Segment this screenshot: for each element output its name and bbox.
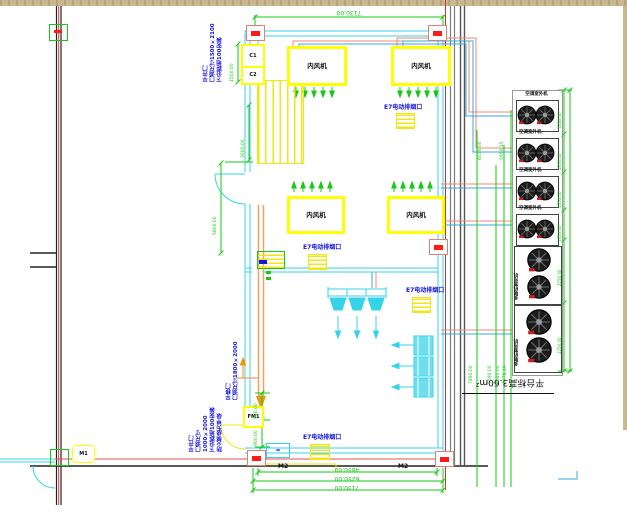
dim-left-lower: 5800.00: [214, 185, 219, 235]
note-line: 平移门: [226, 336, 233, 400]
note-line: 下沿距地100安装: [210, 400, 217, 452]
exhaust-grille: [308, 254, 327, 270]
dim-mark: [266, 277, 271, 280]
valve-mark: [259, 260, 267, 264]
column-marker: [246, 25, 265, 41]
indoor-unit-label: 内风机: [411, 63, 431, 70]
grille-label: E7电动排烟口: [303, 435, 341, 441]
dim-riser-upper-1: 6030.00: [479, 108, 484, 160]
door-swing-upper: [215, 174, 245, 204]
equipment-box: ≈: [266, 443, 290, 458]
indoor-unit-label: 内风机: [307, 63, 327, 70]
note-line: 门洞尺寸1000×2000: [196, 400, 210, 452]
door-spec-note-mid: 平移门 门洞尺寸1800×2000: [226, 336, 240, 400]
indoor-unit-3: 内风机: [287, 196, 345, 234]
dim-bottom-3: 7130.00: [303, 484, 391, 490]
diffuser-cluster-vertical: [392, 336, 433, 397]
note-line: 门洞尺寸1800×2000: [233, 336, 240, 400]
door-tag-left: M1: [72, 445, 95, 463]
exhaust-grille: [396, 113, 415, 129]
red-mark-icon: [434, 245, 443, 250]
note-line: 防火等级为甲级: [217, 400, 224, 452]
door-swing-lower: [221, 425, 245, 449]
wall-junction-box: [49, 24, 68, 41]
equipment-mark: ≈: [275, 448, 280, 454]
outdoor-unit-small-label: 空调室外机: [519, 131, 542, 136]
exhaust-grille: [412, 297, 431, 313]
door-tag-label: M1: [79, 452, 87, 457]
outdoor-unit-small-label: 空调室外机: [519, 207, 542, 212]
indoor-unit-label: 内风机: [306, 212, 326, 219]
dim-unit-4: 1350.00: [558, 208, 562, 242]
outdoor-unit-small-label: 空调室外机: [516, 93, 557, 98]
note-line: 门洞尺寸1500×2100: [210, 22, 217, 82]
window-tag-label: C1: [249, 54, 256, 59]
dim-unit-3: 1350.00: [558, 174, 562, 208]
indoor-unit-1: 内风机: [287, 46, 347, 86]
window-tag-label: C2: [249, 73, 256, 78]
red-mark-icon: [251, 31, 260, 36]
window-tag-1: C1: [241, 44, 265, 68]
red-mark-icon: [54, 30, 62, 33]
dim-unit-5: 2250.00: [558, 252, 562, 286]
grille-label: E7电动排烟口: [303, 245, 341, 251]
dim-mark: [266, 271, 271, 274]
red-mark-icon: [252, 456, 261, 461]
dim-riser-lower-1: 7890.00: [470, 332, 475, 384]
outdoor-unit-small: [516, 100, 559, 132]
red-mark-icon: [433, 31, 442, 36]
outdoor-unit-small: [516, 176, 559, 208]
outdoor-unit-large-label: 多联机室外机: [515, 312, 520, 366]
door-spec-note-top: 平开门 门洞尺寸1500×2100 下沿距地100安装: [203, 22, 224, 82]
outdoor-unit-large-2: [514, 305, 562, 373]
site-wall-left: [30, 6, 61, 505]
grille-label: E7电动排烟口: [384, 105, 422, 111]
outdoor-unit-small: [516, 214, 559, 246]
indoor-unit-4: 内风机: [387, 196, 445, 234]
dim-left-upper: 1500.00: [231, 46, 236, 82]
note-line: 下沿距地100安装: [217, 22, 224, 82]
indoor-unit-label: 内风机: [406, 212, 426, 219]
column-marker: [247, 450, 266, 466]
outdoor-unit-small: [516, 138, 559, 170]
dim-unit-1: 1350.00: [558, 95, 562, 129]
indoor-unit-2: 内风机: [391, 46, 451, 86]
dim-riser-lower-2: 7590.00: [489, 332, 494, 384]
dim-unit-6: 2250.00: [558, 320, 562, 354]
column-marker: [428, 25, 447, 41]
door-swing-site: [33, 466, 55, 488]
dim-bottom-2: 6250.00: [303, 475, 391, 481]
fcu-airflow-arrows: [292, 87, 438, 192]
site-lines-bottom: [0, 459, 488, 488]
wall-junction-box: [50, 449, 69, 466]
dim-door-1: 900.00: [255, 395, 260, 419]
outdoor-unit-large-1: [514, 246, 562, 305]
diffuser-cluster-horizontal: [328, 287, 386, 338]
cad-drawing-canvas: 内风机 内风机 内风机 内风机 C1 C2 FM1 M1 E7电动排烟口 E7电…: [0, 0, 627, 519]
door-spec-note-bottom: 平开门 门洞尺寸1000×2000 下沿距地100安装 防火等级为甲级: [189, 400, 224, 452]
note-line: 平开门: [203, 22, 210, 82]
dim-top: 7130.00: [305, 9, 393, 15]
dim-tag: M2: [278, 464, 288, 470]
outdoor-unit-large-label: 多联机室外机: [515, 250, 520, 300]
louver-block: [257, 80, 304, 164]
dim-tag: M2: [398, 464, 408, 470]
dim-riser-upper-2: 5950.15: [501, 108, 506, 160]
window-tag-2: C2: [241, 66, 265, 85]
column-marker: [429, 239, 448, 255]
duct-riser: [236, 205, 266, 410]
column-marker: [435, 451, 454, 467]
red-mark-icon: [440, 457, 449, 462]
dim-riser-lower-4: 7578.19: [504, 332, 509, 384]
dim-unit-2: 1350.00: [558, 136, 562, 170]
dim-riser-lower-3: 7640.00: [497, 332, 502, 384]
dim-left-mid: 3000.00: [242, 108, 247, 158]
exhaust-grille: [310, 444, 330, 460]
grille-label: E7电动排烟口: [406, 288, 444, 294]
outdoor-unit-small-label: 空调室外机: [519, 169, 542, 174]
dim-bottom-1: 4850.00: [303, 466, 391, 472]
note-line: 平开门: [189, 400, 196, 452]
dim-door-2: 900.00: [255, 422, 260, 446]
platform-note-underline: [462, 393, 554, 394]
